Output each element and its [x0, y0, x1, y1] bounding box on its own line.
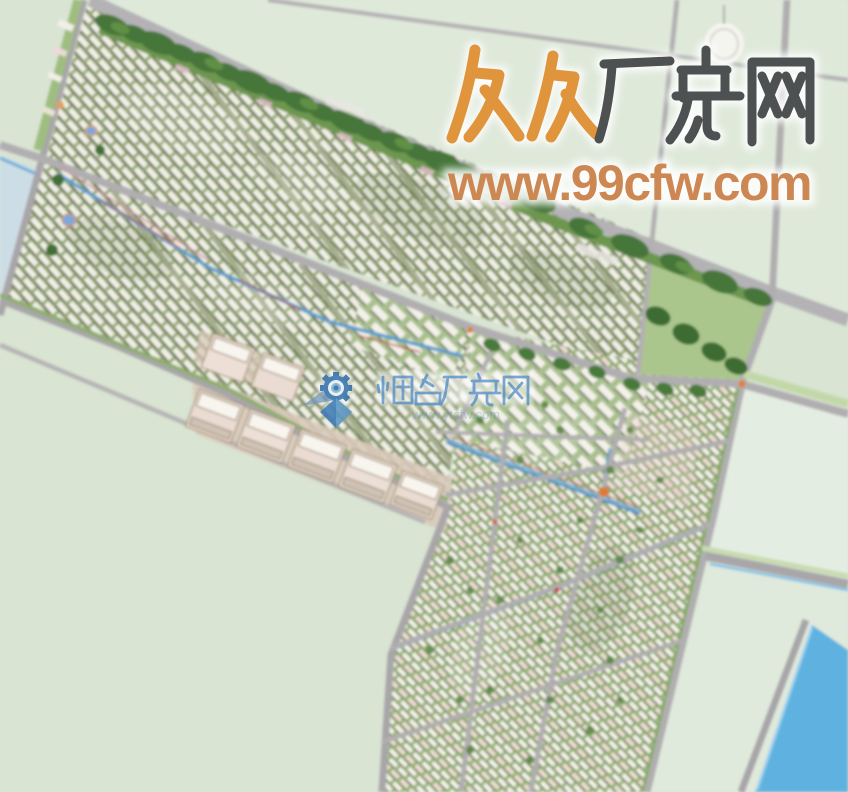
svg-text:www.ytcfw.com: www.ytcfw.com: [411, 407, 500, 422]
svg-text:www.99cfw.com: www.99cfw.com: [447, 155, 811, 211]
